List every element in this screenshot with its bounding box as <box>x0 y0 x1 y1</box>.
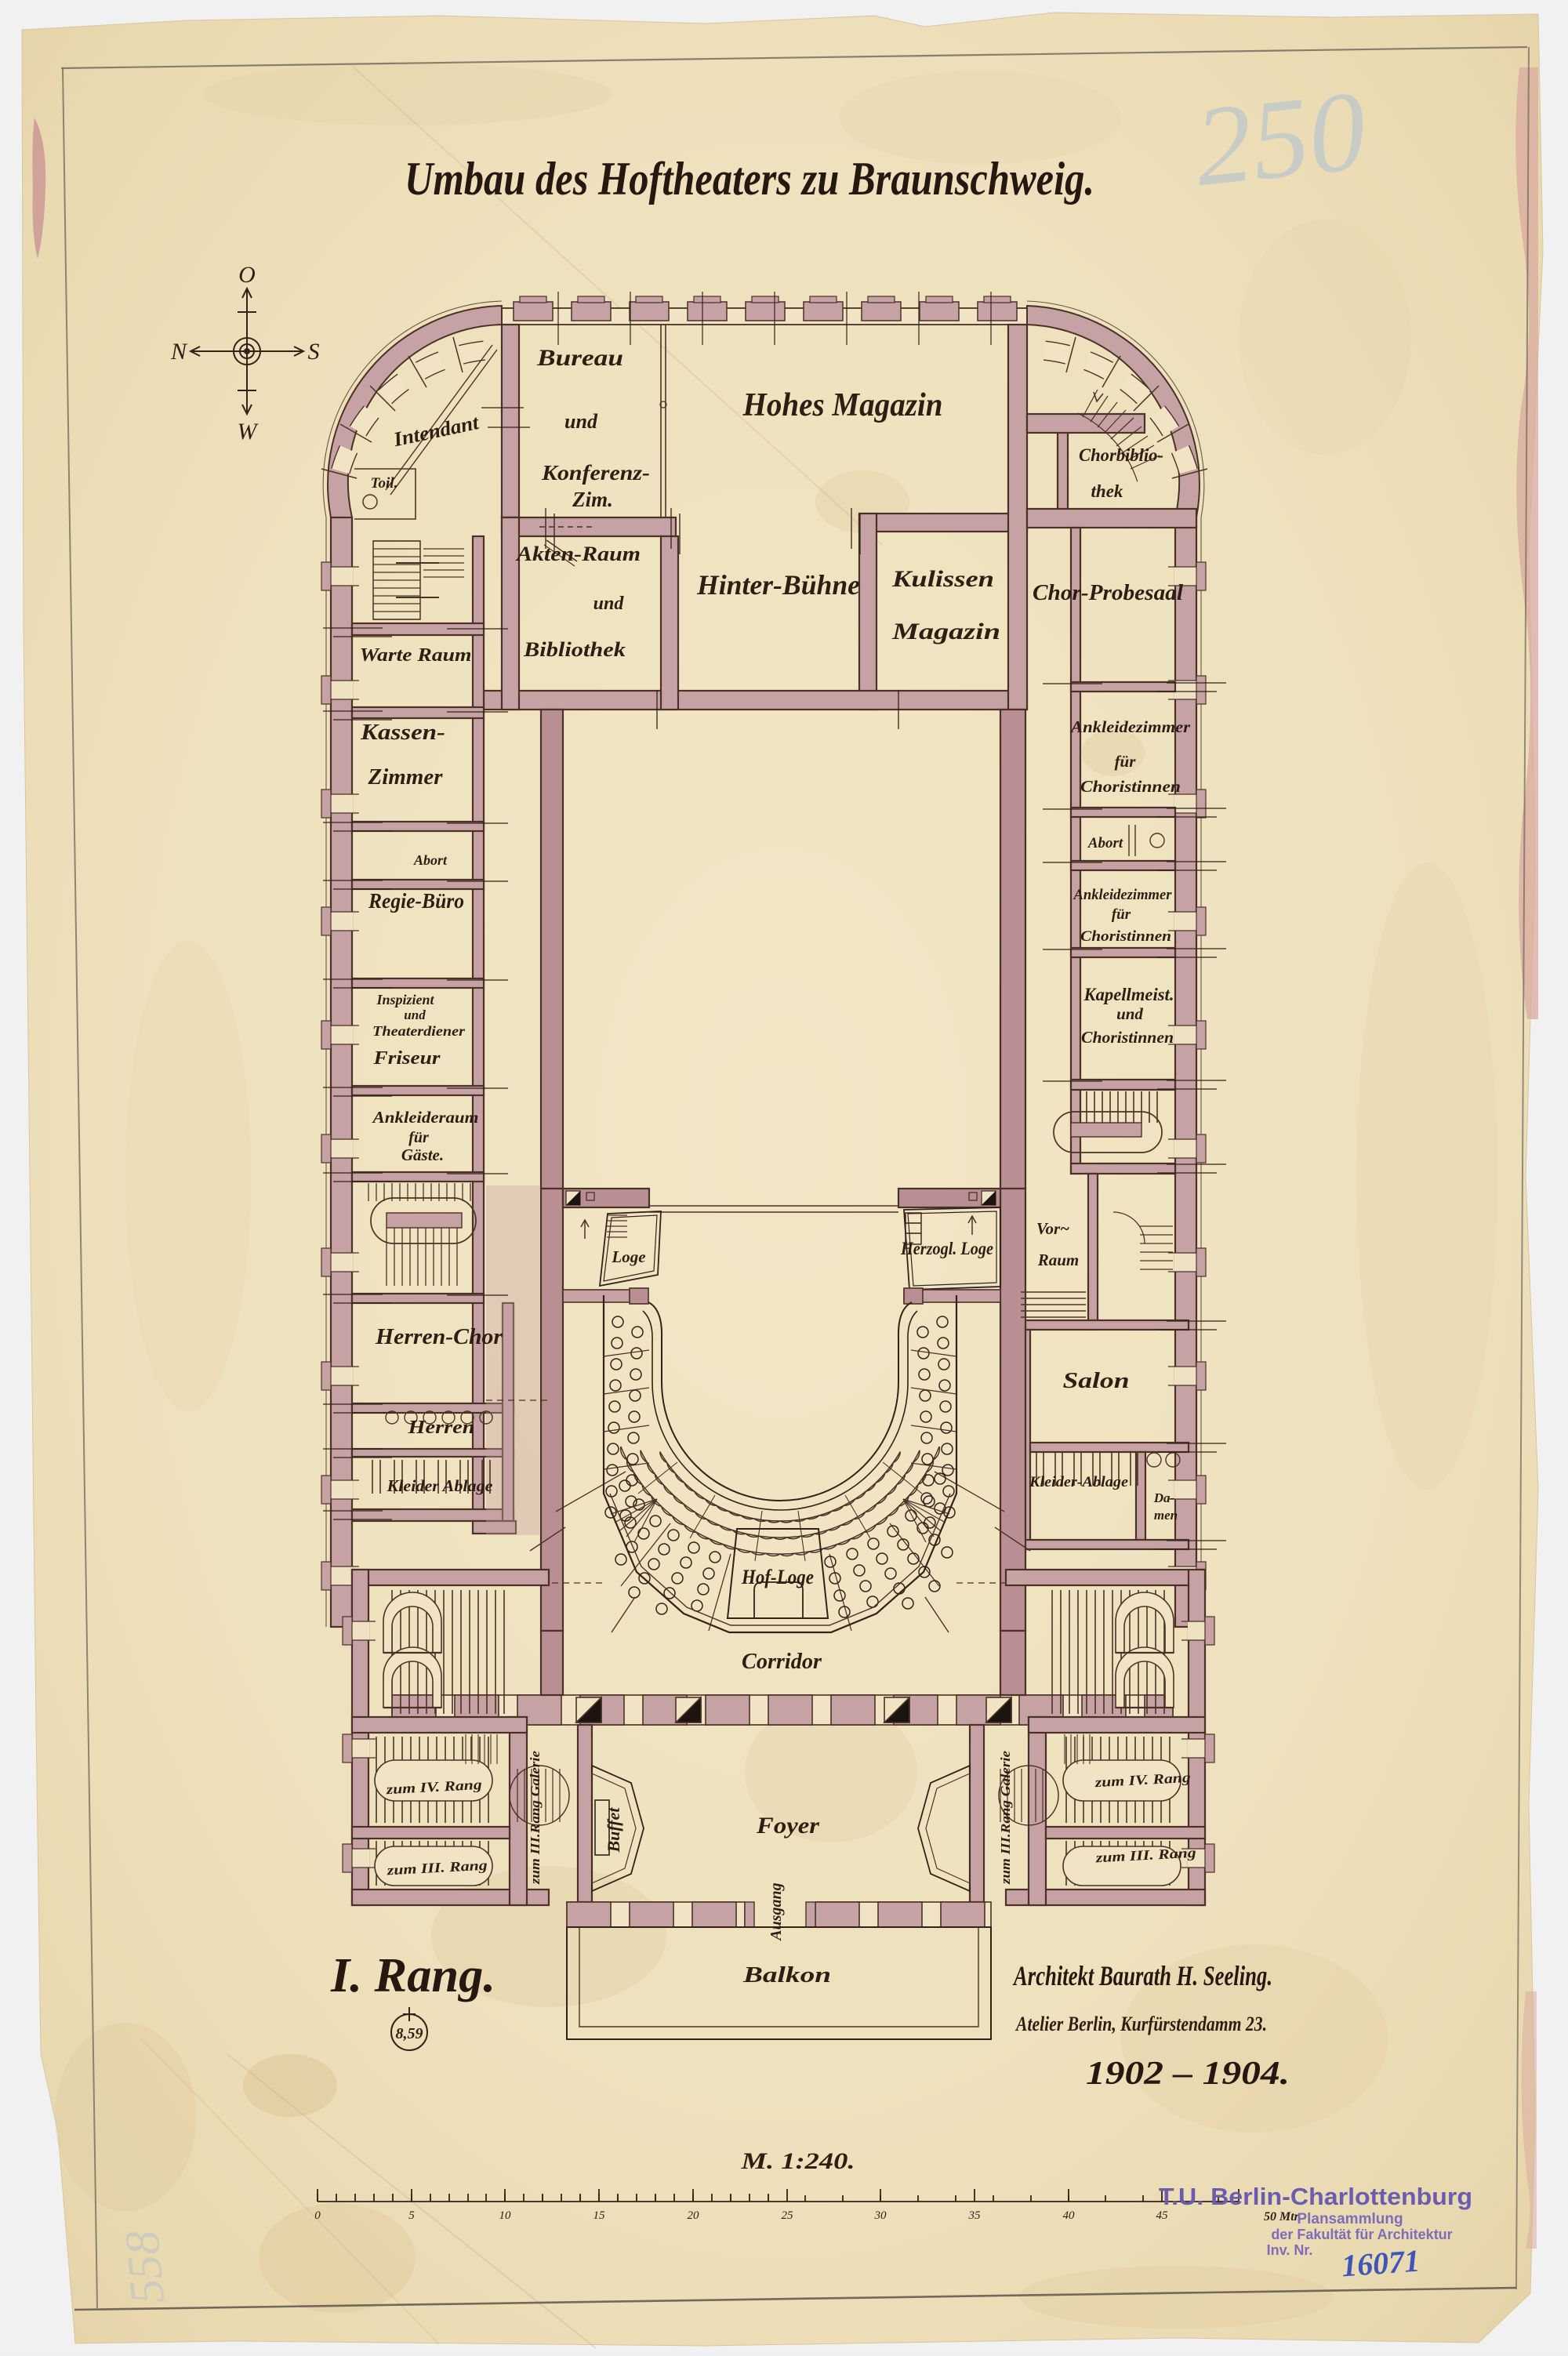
svg-text:thek: thek <box>1091 481 1123 501</box>
svg-text:Gäste.: Gäste. <box>401 1145 444 1164</box>
svg-text:Kleider Ablage: Kleider Ablage <box>386 1476 492 1495</box>
svg-text:45: 45 <box>1156 2209 1169 2222</box>
svg-text:Buffet: Buffet <box>604 1807 623 1853</box>
svg-text:Raum: Raum <box>1037 1251 1080 1269</box>
svg-text:35: 35 <box>968 2209 982 2222</box>
svg-text:zum III.Rang Galerie: zum III.Rang Galerie <box>528 1751 543 1886</box>
svg-text:und: und <box>404 1007 426 1022</box>
svg-text:0: 0 <box>314 2209 321 2222</box>
svg-text:1902 – 1904.: 1902 – 1904. <box>1086 2056 1290 2092</box>
svg-text:558: 558 <box>115 2228 175 2306</box>
svg-text:Herren: Herren <box>407 1418 474 1438</box>
svg-text:der Fakultät für Architektur: der Fakultät für Architektur <box>1271 2227 1452 2242</box>
svg-text:Herzogl. Loge: Herzogl. Loge <box>900 1239 993 1258</box>
svg-text:Ankleidezimmer: Ankleidezimmer <box>1069 717 1191 736</box>
svg-text:und: und <box>593 594 625 614</box>
svg-text:für: für <box>1115 752 1137 771</box>
svg-text:8,59: 8,59 <box>396 2025 423 2042</box>
svg-text:Inspizient: Inspizient <box>376 992 434 1007</box>
svg-text:Balkon: Balkon <box>742 1963 831 1988</box>
svg-text:Zim.: Zim. <box>572 488 613 511</box>
svg-text:Herren-Chor: Herren-Chor <box>375 1325 503 1349</box>
svg-text:20: 20 <box>688 2209 700 2222</box>
svg-text:Chor-Probesaal: Chor-Probesaal <box>1033 581 1183 605</box>
svg-text:Akten-Raum: Akten-Raum <box>515 543 641 565</box>
svg-text:zum III.Rang Galerie: zum III.Rang Galerie <box>998 1751 1013 1886</box>
svg-text:5: 5 <box>408 2209 415 2222</box>
svg-text:Magazin: Magazin <box>891 619 1000 644</box>
svg-text:S: S <box>308 339 320 365</box>
svg-text:Da-: Da- <box>1153 1490 1175 1505</box>
svg-text:Foyer: Foyer <box>756 1813 819 1839</box>
svg-text:Bureau: Bureau <box>536 345 623 371</box>
svg-text:Choristinnen: Choristinnen <box>1080 777 1181 796</box>
svg-text:Ausgang: Ausgang <box>768 1882 785 1941</box>
svg-text:Regie-Büro: Regie-Büro <box>368 889 464 913</box>
svg-text:Kulissen: Kulissen <box>891 566 994 592</box>
svg-text:Theaterdiener: Theaterdiener <box>372 1023 466 1039</box>
svg-text:I. Rang.: I. Rang. <box>330 1949 495 2002</box>
svg-text:Umbau des Hoftheaters zu Braun: Umbau des Hoftheaters zu Braunschweig. <box>405 153 1094 205</box>
svg-text:Atelier Berlin, Kurfürstendamm: Atelier Berlin, Kurfürstendamm 23. <box>1014 2013 1267 2035</box>
svg-text:Kassen-: Kassen- <box>360 721 445 745</box>
svg-text:Hinter-Bühne: Hinter-Bühne <box>696 569 860 601</box>
svg-text:Abort: Abort <box>1087 835 1123 851</box>
svg-text:10: 10 <box>499 2209 512 2222</box>
svg-text:für: für <box>408 1129 429 1146</box>
svg-text:Chorbiblio-: Chorbiblio- <box>1079 445 1163 465</box>
svg-text:Loge: Loge <box>611 1247 645 1266</box>
svg-text:Corridor: Corridor <box>742 1650 822 1674</box>
svg-text:Kapellmeist.: Kapellmeist. <box>1083 985 1174 1004</box>
svg-text:Zimmer: Zimmer <box>367 765 443 790</box>
svg-text:Choristinnen: Choristinnen <box>1080 928 1171 945</box>
svg-text:25: 25 <box>782 2209 794 2222</box>
svg-text:16071: 16071 <box>1341 2243 1421 2284</box>
svg-text:Toil.: Toil. <box>371 475 398 492</box>
svg-text:O: O <box>238 262 256 288</box>
svg-text:Friseur: Friseur <box>372 1048 441 1069</box>
svg-text:Kleider-Ablage: Kleider-Ablage <box>1029 1474 1129 1490</box>
svg-text:Ankleidezimmer: Ankleidezimmer <box>1073 887 1173 903</box>
svg-text:50 Mtr.: 50 Mtr. <box>1264 2210 1301 2223</box>
svg-text:250: 250 <box>1189 67 1371 210</box>
svg-text:N: N <box>170 339 188 365</box>
svg-text:Ankleideraum: Ankleideraum <box>371 1108 478 1127</box>
svg-text:Vor~: Vor~ <box>1036 1219 1069 1238</box>
svg-text:Bibliothek: Bibliothek <box>523 638 626 661</box>
svg-text:Abort: Abort <box>413 852 448 868</box>
svg-text:Hohes Magazin: Hohes Magazin <box>742 387 943 423</box>
svg-text:Konferenz-: Konferenz- <box>541 461 650 485</box>
svg-text:40: 40 <box>1063 2209 1076 2222</box>
svg-text:Choristinnen: Choristinnen <box>1081 1028 1174 1047</box>
svg-text:M. 1:240.: M. 1:240. <box>740 2148 855 2174</box>
svg-text:15: 15 <box>593 2209 606 2222</box>
svg-text:Warte Raum: Warte Raum <box>360 645 472 666</box>
svg-text:und: und <box>564 410 598 433</box>
svg-text:30: 30 <box>874 2209 887 2222</box>
svg-text:Plansammlung: Plansammlung <box>1297 2211 1403 2227</box>
svg-text:T.U. Berlin-Charlottenburg: T.U. Berlin-Charlottenburg <box>1159 2183 1472 2210</box>
svg-text:Inv. Nr.: Inv. Nr. <box>1267 2242 1313 2258</box>
svg-text:Architekt Baurath H. Seeling.: Architekt Baurath H. Seeling. <box>1013 1960 1272 1991</box>
svg-text:W: W <box>238 419 260 445</box>
svg-text:men: men <box>1154 1508 1178 1523</box>
svg-text:und: und <box>1116 1004 1143 1023</box>
svg-text:Salon: Salon <box>1063 1369 1130 1393</box>
svg-text:für: für <box>1112 906 1131 923</box>
svg-text:Hof-Loge: Hof-Loge <box>741 1566 814 1588</box>
